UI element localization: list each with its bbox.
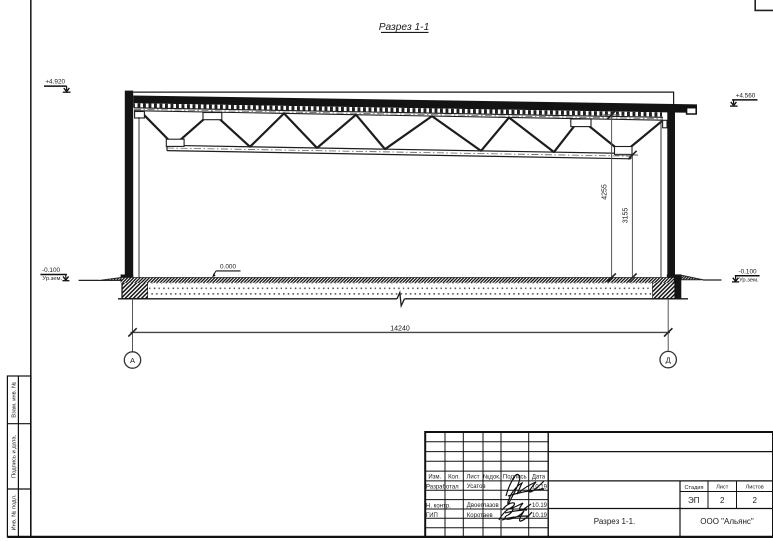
svg-text:3155: 3155 xyxy=(623,208,630,224)
svg-text:10.19: 10.19 xyxy=(532,503,548,509)
svg-text:Лист: Лист xyxy=(716,484,729,490)
svg-text:-0.100: -0.100 xyxy=(738,268,757,275)
svg-text:Инв. № подл.: Инв. № подл. xyxy=(12,494,18,530)
svg-text:№док.: №док. xyxy=(483,474,501,481)
svg-text:14240: 14240 xyxy=(390,325,410,332)
svg-text:+4.560: +4.560 xyxy=(736,92,756,99)
svg-text:Стадия: Стадия xyxy=(684,485,703,491)
svg-text:4255: 4255 xyxy=(602,184,609,200)
svg-text:Коротаев: Коротаев xyxy=(467,513,493,519)
svg-text:10.19: 10.19 xyxy=(532,513,548,519)
svg-text:+4.920: +4.920 xyxy=(45,79,65,86)
svg-text:Ур.зем.: Ур.зем. xyxy=(739,278,759,284)
svg-text:Д: Д xyxy=(666,356,671,365)
svg-text:Разрез 1-1.: Разрез 1-1. xyxy=(594,517,636,526)
svg-text:-0.100: -0.100 xyxy=(42,267,61,274)
svg-text:Дата: Дата xyxy=(532,475,546,481)
svg-text:Двоеглазов: Двоеглазов xyxy=(467,503,499,509)
svg-text:ООО "Альянс": ООО "Альянс" xyxy=(700,517,754,526)
svg-text:ЭП: ЭП xyxy=(688,496,700,505)
svg-text:Н. контр.: Н. контр. xyxy=(426,503,451,509)
svg-text:Лист: Лист xyxy=(466,475,479,481)
svg-text:Кол.: Кол. xyxy=(448,475,460,481)
svg-text:2: 2 xyxy=(752,496,757,505)
svg-text:ГИП: ГИП xyxy=(426,513,438,519)
svg-text:Ур.зем.: Ур.зем. xyxy=(42,276,62,282)
svg-text:Листов: Листов xyxy=(746,484,764,490)
svg-text:Разработал: Разработал xyxy=(426,484,459,490)
svg-text:0.000: 0.000 xyxy=(220,264,236,271)
svg-text:2: 2 xyxy=(720,496,725,505)
svg-text:Разрез 1-1: Разрез 1-1 xyxy=(379,22,429,33)
svg-text:Усатов: Усатов xyxy=(467,484,486,490)
svg-text:Подпись и дата.: Подпись и дата. xyxy=(12,434,18,478)
svg-text:Взам. инв. №: Взам. инв. № xyxy=(12,382,18,418)
svg-text:Изм.: Изм. xyxy=(428,475,441,481)
